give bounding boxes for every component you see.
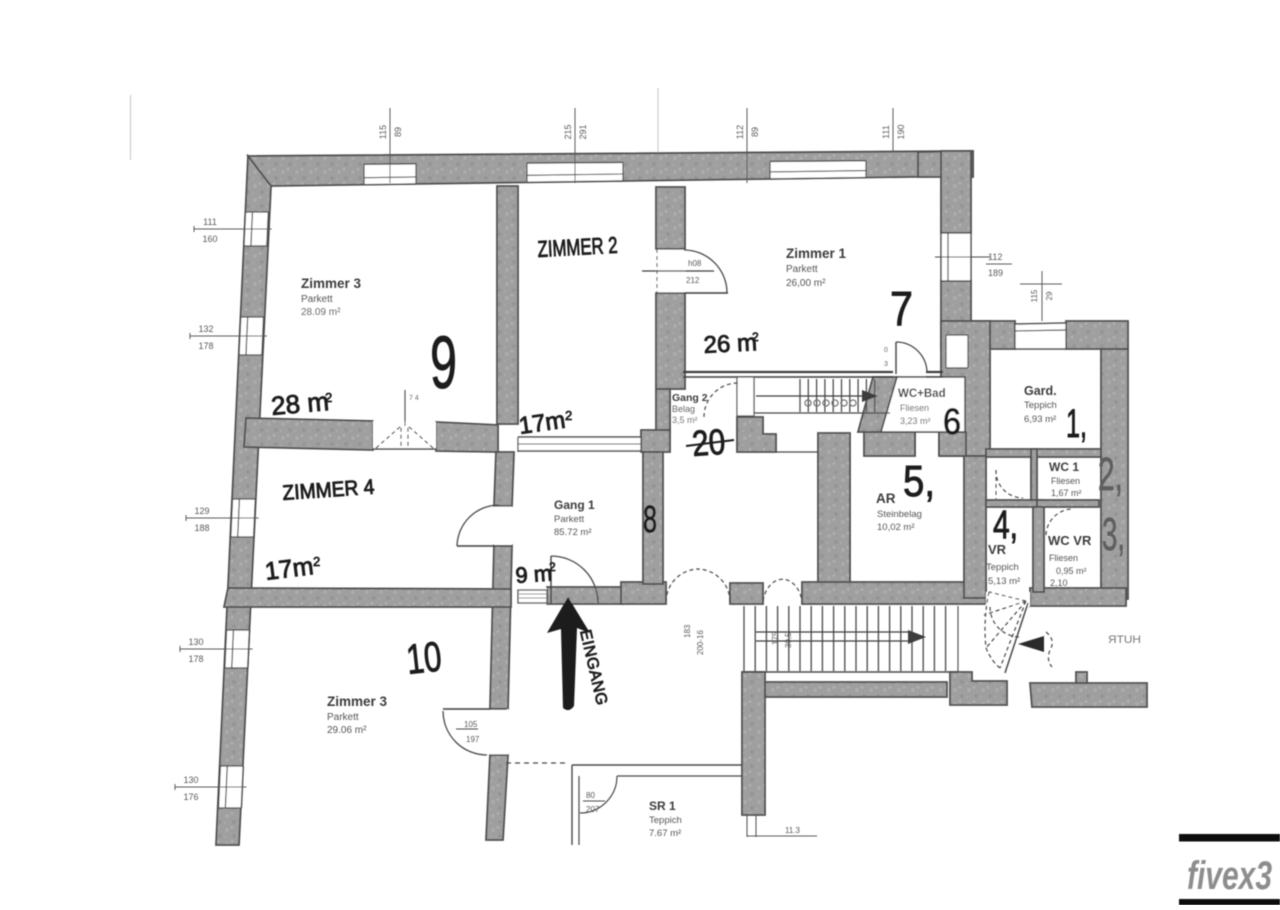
svg-text:WC 1: WC 1 (1049, 460, 1079, 474)
svg-text:8: 8 (643, 499, 657, 541)
svg-text:188: 188 (194, 523, 209, 533)
svg-text:6,93 m²: 6,93 m² (1024, 414, 1056, 425)
svg-text:0,95 m²: 0,95 m² (1056, 566, 1087, 576)
svg-text:112: 112 (735, 125, 745, 139)
svg-text:176: 176 (183, 792, 198, 802)
svg-text:Fliesen: Fliesen (1051, 476, 1080, 486)
svg-text:28 m: 28 m (270, 386, 330, 421)
svg-text:5,: 5, (903, 457, 935, 506)
svg-text:Parkett: Parkett (786, 264, 818, 275)
svg-text:Parkett: Parkett (301, 294, 333, 305)
svg-text:130: 130 (188, 637, 203, 647)
svg-text:Gard.: Gard. (1024, 384, 1057, 398)
svg-text:10,02 m²: 10,02 m² (877, 522, 915, 533)
svg-text:160: 160 (202, 234, 217, 244)
svg-text:1,67 m²: 1,67 m² (1051, 488, 1082, 498)
svg-text:80: 80 (586, 791, 595, 800)
svg-text:26 m: 26 m (703, 329, 758, 359)
svg-text:130: 130 (183, 775, 198, 785)
svg-text:Parkett: Parkett (327, 712, 359, 723)
svg-text:Zimmer 3: Zimmer 3 (327, 694, 388, 709)
svg-text:9: 9 (430, 321, 457, 404)
svg-text:26,00 m²: 26,00 m² (786, 278, 826, 289)
svg-text:Teppich: Teppich (986, 562, 1019, 573)
svg-text:7.67 m²: 7.67 m² (649, 828, 681, 839)
svg-text:ЯТUН: ЯТUН (1108, 634, 1141, 646)
svg-text:17m: 17m (263, 552, 315, 586)
svg-text:SR 1: SR 1 (649, 799, 676, 813)
svg-text:178: 178 (188, 654, 203, 664)
svg-text:WC+Bad: WC+Bad (898, 388, 946, 400)
svg-text:Parkett: Parkett (554, 514, 584, 525)
svg-text:215: 215 (563, 124, 573, 139)
svg-text:89: 89 (393, 127, 403, 137)
svg-text:2: 2 (549, 560, 556, 574)
svg-text:Steinbelag: Steinbelag (877, 509, 922, 520)
svg-text:Zimmer 3: Zimmer 3 (301, 276, 362, 291)
svg-text:7 4: 7 4 (409, 395, 419, 402)
svg-text:5,13 m²: 5,13 m² (988, 576, 1020, 587)
svg-text:2: 2 (565, 408, 572, 423)
svg-text:AR: AR (876, 491, 896, 506)
svg-text:29.06 m²: 29.06 m² (327, 725, 367, 736)
svg-text:Gang 1: Gang 1 (554, 498, 595, 512)
svg-text:3,: 3, (1102, 508, 1125, 560)
svg-text:Fliesen: Fliesen (1049, 553, 1078, 563)
svg-text:Teppich: Teppich (1024, 400, 1057, 411)
svg-text:Fliesen: Fliesen (900, 403, 929, 413)
svg-text:105: 105 (464, 720, 478, 729)
svg-text:Belag: Belag (672, 404, 695, 414)
svg-text:112: 112 (988, 252, 1002, 262)
svg-text:190: 190 (896, 124, 906, 139)
svg-text:197: 197 (466, 735, 480, 744)
svg-text:2: 2 (752, 330, 759, 344)
svg-text:2,10: 2,10 (1050, 578, 1068, 588)
svg-text:129: 129 (194, 506, 209, 516)
svg-text:2: 2 (325, 390, 332, 405)
svg-text:207: 207 (586, 805, 600, 814)
svg-text:189: 189 (988, 268, 1003, 278)
svg-text:2: 2 (313, 554, 320, 569)
svg-text:30,5: 30,5 (784, 632, 793, 648)
svg-text:175: 175 (771, 631, 780, 645)
svg-text:WC VR: WC VR (1048, 533, 1092, 548)
svg-text:111: 111 (881, 125, 891, 139)
svg-text:3: 3 (884, 361, 888, 368)
svg-text:291: 291 (578, 124, 588, 139)
svg-text:Teppich: Teppich (649, 815, 682, 826)
svg-text:115: 115 (1030, 289, 1039, 302)
svg-text:h08: h08 (688, 259, 702, 268)
svg-text:fivex3: fivex3 (1187, 854, 1272, 898)
svg-text:6: 6 (943, 401, 961, 442)
svg-text:3,23 m²: 3,23 m² (900, 416, 931, 426)
svg-text:Gang 2: Gang 2 (672, 392, 708, 404)
svg-text:4,: 4, (993, 503, 1018, 547)
svg-text:9 m: 9 m (515, 560, 553, 587)
svg-text:85.72 m²: 85.72 m² (554, 527, 592, 538)
svg-text:7: 7 (890, 283, 913, 336)
svg-text:178: 178 (198, 341, 213, 351)
svg-text:2,: 2, (1098, 448, 1123, 500)
svg-text:132: 132 (198, 324, 213, 334)
svg-text:0: 0 (884, 347, 888, 354)
svg-text:89: 89 (750, 127, 760, 137)
svg-text:ZIMMER 2: ZIMMER 2 (537, 232, 618, 262)
svg-text:183: 183 (683, 624, 692, 638)
svg-text:11.3: 11.3 (785, 826, 801, 835)
svg-text:111: 111 (203, 217, 217, 227)
svg-text:200-16: 200-16 (696, 630, 705, 655)
svg-text:212: 212 (686, 276, 700, 285)
svg-text:1,: 1, (1066, 402, 1087, 446)
svg-text:10: 10 (404, 633, 444, 683)
svg-text:Zimmer 1: Zimmer 1 (786, 246, 847, 261)
svg-text:115: 115 (378, 125, 388, 139)
svg-text:29: 29 (1045, 291, 1054, 300)
svg-text:28.09 m²: 28.09 m² (301, 307, 341, 318)
